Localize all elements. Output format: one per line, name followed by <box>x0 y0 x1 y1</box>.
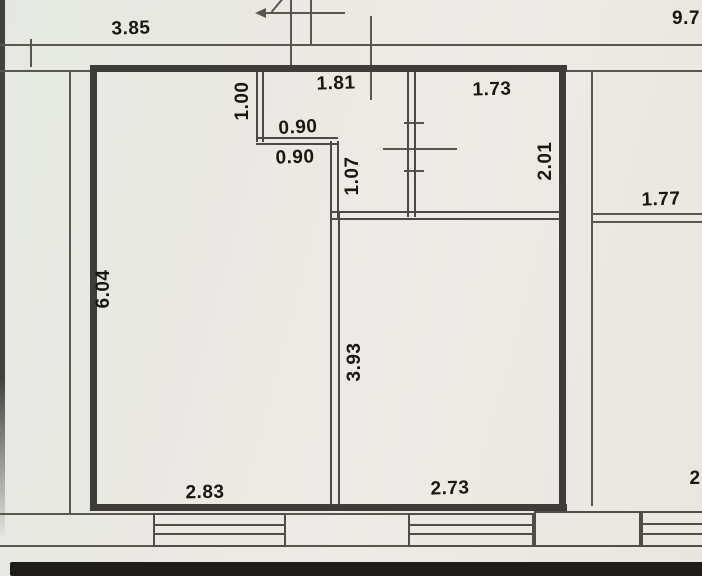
dimension-label-entry-span-width: 1.81 <box>316 72 356 95</box>
diagonal-tick <box>271 0 283 13</box>
adjacent-room-partition-line-1 <box>591 213 702 215</box>
dimension-label-hall-partition-length: 1.07 <box>342 157 364 196</box>
adjacent-room-partition-line-2 <box>591 221 702 223</box>
outer-wall-bottom <box>90 504 567 511</box>
entry-recess-wall-vertical <box>256 72 264 142</box>
window-symbol-right <box>641 511 702 547</box>
top-left-wall-line <box>0 70 92 72</box>
top-dimension-line <box>0 44 702 46</box>
dimension-arrow-icon <box>255 8 266 18</box>
dimension-label-left-room-width: 2.83 <box>185 482 224 505</box>
dimension-label-right-room-depth: 3.93 <box>344 343 366 382</box>
hall-bottom-wall <box>332 211 560 220</box>
dimension-arrow-line <box>262 12 345 14</box>
dimension-label-recess-width-upper: 0.90 <box>278 116 318 140</box>
scan-edge-bottom <box>10 562 702 576</box>
facade-wall-pier <box>534 511 641 547</box>
window-symbol-left <box>153 513 286 547</box>
dimension-label-top-right-room-depth: 2.01 <box>535 142 557 181</box>
top-right-room-left-wall <box>407 72 416 217</box>
dimension-tick-left <box>30 39 32 67</box>
dimension-label-recess-width-lower: 0.90 <box>275 146 315 169</box>
room-divider-wall <box>330 212 340 505</box>
adjacent-room-wall-line <box>591 72 593 506</box>
dimension-label-top-left-width: 3.85 <box>111 17 151 40</box>
dimension-label-adjacent-room-width: 1.77 <box>641 188 681 211</box>
scan-edge-left <box>0 0 5 540</box>
dimension-label-top-right-room-width: 1.73 <box>472 78 512 101</box>
extension-line-2 <box>310 0 312 46</box>
extension-line-3 <box>370 16 372 100</box>
dimension-label-recess-depth: 1.00 <box>232 82 254 121</box>
extension-line-1 <box>290 0 292 70</box>
top-right-wall-line <box>562 70 702 72</box>
outer-wall-right <box>559 65 566 511</box>
dimension-label-right-room-width: 2.73 <box>430 477 470 500</box>
outer-wall-top <box>90 65 567 72</box>
dimension-label-bottom-right-partial: 2 <box>689 468 700 490</box>
dimension-label-top-right-width: 9.7 <box>672 8 700 30</box>
floor-plan-scan: 3.85 9.7 1.81 1.73 1.00 0.90 0.90 1.07 2… <box>0 0 702 576</box>
left-boundary-line <box>69 70 71 515</box>
hall-partition-wall <box>330 141 339 219</box>
dimension-label-left-room-depth: 6.04 <box>93 270 115 309</box>
closet-cross-line <box>383 148 457 150</box>
window-symbol-center <box>408 513 534 547</box>
